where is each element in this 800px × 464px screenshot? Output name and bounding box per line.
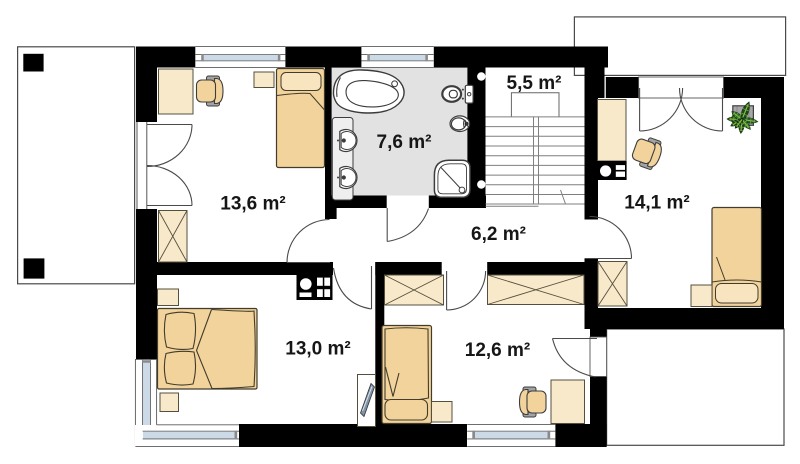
svg-text:12,6 m²: 12,6 m² — [465, 340, 530, 361]
svg-text:5,5 m²: 5,5 m² — [507, 73, 562, 94]
svg-text:14,1 m²: 14,1 m² — [624, 193, 689, 214]
svg-text:7,6 m²: 7,6 m² — [377, 132, 432, 153]
svg-text:13,0 m²: 13,0 m² — [285, 339, 350, 360]
svg-text:6,2 m²: 6,2 m² — [471, 224, 526, 245]
svg-text:13,6 m²: 13,6 m² — [220, 194, 285, 215]
